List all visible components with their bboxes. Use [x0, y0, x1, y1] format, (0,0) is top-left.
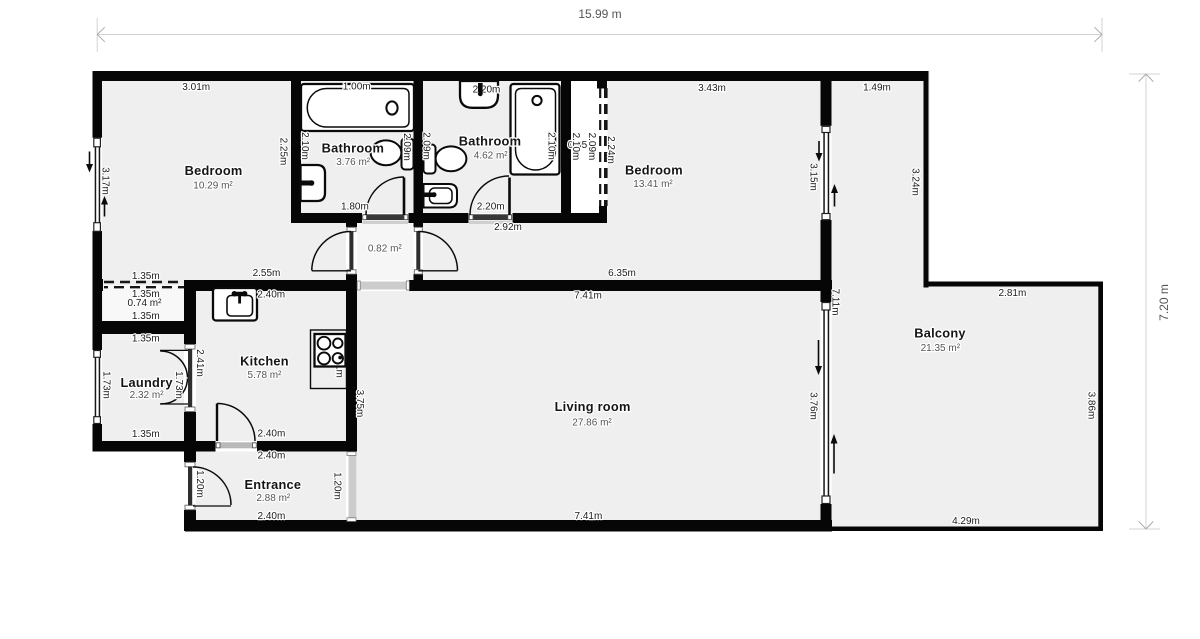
svg-text:2.40m: 2.40m: [258, 428, 286, 439]
svg-text:3.76 m²: 3.76 m²: [336, 157, 371, 168]
svg-text:2.41m: 2.41m: [194, 349, 205, 377]
svg-text:Bathroom: Bathroom: [459, 134, 521, 149]
svg-text:2.20m: 2.20m: [477, 202, 505, 213]
svg-text:1.73m: 1.73m: [173, 371, 184, 399]
svg-text:Bathroom: Bathroom: [322, 140, 384, 155]
svg-text:7.41m: 7.41m: [574, 291, 602, 302]
svg-text:Kitchen: Kitchen: [240, 354, 289, 369]
svg-text:3.75m: 3.75m: [354, 390, 365, 418]
svg-text:2.40m: 2.40m: [258, 511, 286, 522]
svg-text:4.29m: 4.29m: [952, 516, 980, 527]
svg-text:7.20 m: 7.20 m: [1157, 284, 1171, 321]
svg-text:3.86m: 3.86m: [1086, 392, 1097, 420]
svg-text:27.86 m²: 27.86 m²: [572, 417, 612, 428]
svg-text:Laundry: Laundry: [120, 375, 173, 390]
svg-text:1.80m: 1.80m: [341, 202, 369, 213]
svg-text:2.09m: 2.09m: [586, 133, 597, 161]
svg-text:2.10m: 2.10m: [546, 132, 557, 160]
svg-text:1.20m: 1.20m: [194, 470, 205, 498]
svg-text:2.09m: 2.09m: [421, 132, 432, 160]
svg-text:1.35m: 1.35m: [132, 334, 160, 345]
svg-text:2.55m: 2.55m: [253, 268, 281, 279]
svg-text:1.35m: 1.35m: [132, 311, 160, 322]
svg-text:Living room: Living room: [555, 399, 631, 414]
svg-text:21.35 m²: 21.35 m²: [921, 343, 961, 354]
svg-text:2.92m: 2.92m: [494, 222, 522, 233]
svg-text:2.24m: 2.24m: [605, 136, 616, 164]
svg-text:3.17m: 3.17m: [100, 167, 111, 195]
svg-text:2.40m: 2.40m: [257, 290, 285, 301]
svg-text:2.88 m²: 2.88 m²: [256, 493, 291, 504]
svg-text:Balcony: Balcony: [914, 326, 966, 341]
svg-text:3.76m: 3.76m: [808, 392, 819, 420]
svg-text:5.78 m²: 5.78 m²: [248, 370, 283, 381]
svg-text:10.29 m²: 10.29 m²: [193, 180, 233, 191]
svg-text:2.10m: 2.10m: [299, 132, 310, 160]
svg-text:1.20m: 1.20m: [332, 472, 343, 500]
svg-text:13.41 m²: 13.41 m²: [633, 179, 673, 190]
svg-text:2.20m: 2.20m: [473, 85, 501, 96]
svg-text:1.73m: 1.73m: [101, 371, 112, 399]
svg-text:3.43m: 3.43m: [698, 83, 726, 94]
svg-text:2.09m: 2.09m: [401, 133, 412, 161]
svg-text:2.81m: 2.81m: [999, 288, 1027, 299]
svg-text:3.01m: 3.01m: [182, 82, 210, 93]
svg-text:2.40m: 2.40m: [258, 450, 286, 461]
svg-text:1.49m: 1.49m: [863, 83, 891, 94]
svg-text:7.11m: 7.11m: [830, 288, 841, 315]
svg-text:Entrance: Entrance: [245, 477, 302, 492]
svg-text:2.25m: 2.25m: [278, 138, 289, 166]
svg-text:3.15m: 3.15m: [808, 163, 819, 191]
svg-text:1.00m: 1.00m: [343, 82, 371, 93]
svg-text:Bedroom: Bedroom: [185, 163, 243, 178]
svg-text:0.82 m²: 0.82 m²: [368, 243, 403, 254]
svg-text:15.99 m: 15.99 m: [578, 7, 621, 21]
svg-text:3.24m: 3.24m: [910, 168, 921, 196]
svg-text:Bedroom: Bedroom: [625, 163, 683, 178]
svg-text:7.41m: 7.41m: [575, 511, 603, 522]
svg-text:0.74 m²: 0.74 m²: [128, 298, 163, 309]
svg-text:1.35m: 1.35m: [132, 271, 160, 282]
svg-text:2.32 m²: 2.32 m²: [130, 390, 165, 401]
svg-text:6.35m: 6.35m: [608, 268, 636, 279]
svg-text:1.35m: 1.35m: [132, 429, 160, 440]
svg-text:2.10m: 2.10m: [570, 133, 581, 161]
svg-text:4.62 m²: 4.62 m²: [474, 151, 509, 162]
